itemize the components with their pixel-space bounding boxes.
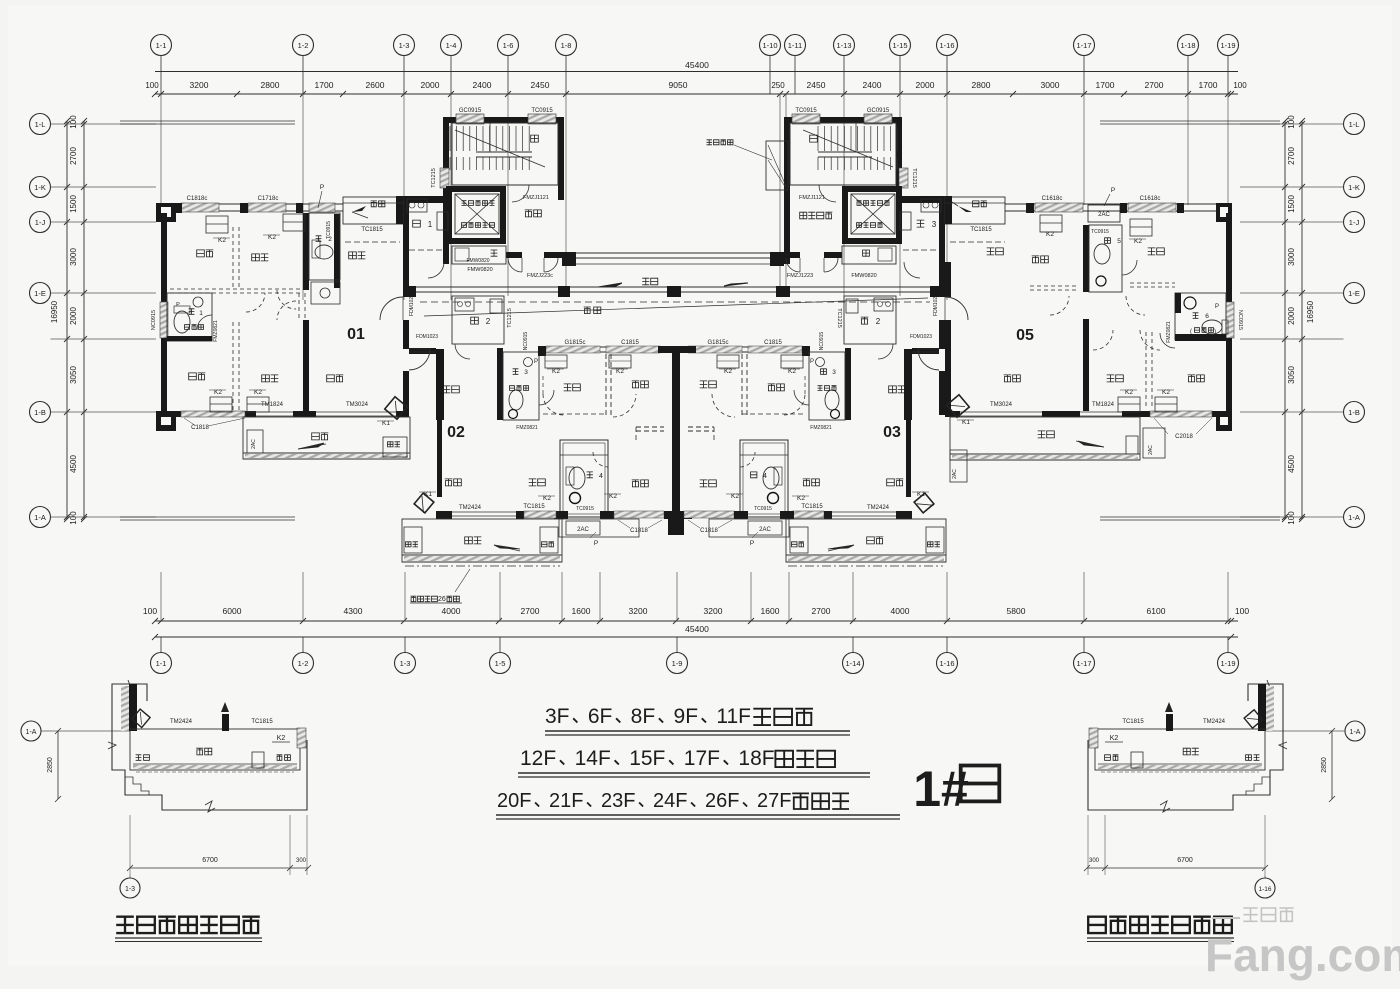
svg-text:FMZ0821: FMZ0821 <box>213 320 219 342</box>
svg-text:1500: 1500 <box>69 195 78 213</box>
svg-text:1-E: 1-E <box>1348 289 1360 298</box>
svg-text:3200: 3200 <box>704 606 723 616</box>
svg-text:6100: 6100 <box>1147 606 1166 616</box>
svg-text:TC1815: TC1815 <box>251 719 273 725</box>
svg-text:FDM1023: FDM1023 <box>416 334 438 340</box>
svg-text:24F: 24F <box>653 790 687 812</box>
svg-text:1-J: 1-J <box>35 218 46 227</box>
svg-text:100: 100 <box>1287 115 1296 129</box>
svg-text:P: P <box>320 184 324 191</box>
svg-text:5: 5 <box>1117 238 1121 245</box>
svg-text:26: 26 <box>438 596 446 603</box>
svg-text:TC1815: TC1815 <box>523 504 545 510</box>
svg-text:1-1: 1-1 <box>156 41 167 50</box>
svg-text:5800: 5800 <box>1007 606 1026 616</box>
svg-text:NC0915: NC0915 <box>819 332 825 351</box>
svg-text:1-1: 1-1 <box>156 659 167 668</box>
svg-text:P: P <box>594 540 598 547</box>
svg-text:1-8: 1-8 <box>561 41 572 50</box>
svg-text:2: 2 <box>486 317 491 326</box>
svg-text:2400: 2400 <box>473 80 492 90</box>
svg-text:TC0915: TC0915 <box>576 506 594 512</box>
svg-text:100: 100 <box>145 81 159 90</box>
svg-text:8F: 8F <box>631 705 656 728</box>
svg-text:3200: 3200 <box>190 80 209 90</box>
svg-text:6000: 6000 <box>223 606 242 616</box>
svg-text:1-L: 1-L <box>35 120 46 129</box>
svg-text:15F: 15F <box>629 747 665 770</box>
svg-text:4: 4 <box>763 473 767 480</box>
svg-text:2000: 2000 <box>1287 307 1296 325</box>
svg-text:FMZJ1121: FMZJ1121 <box>523 195 549 201</box>
svg-text:1-L: 1-L <box>1349 120 1360 129</box>
svg-text:9050: 9050 <box>669 80 688 90</box>
svg-text:TM2424: TM2424 <box>459 505 482 511</box>
svg-text:1-16: 1-16 <box>939 659 954 668</box>
svg-text:3F: 3F <box>545 705 570 728</box>
svg-text:FMZJ223c: FMZJ223c <box>527 273 553 279</box>
svg-text:17F: 17F <box>684 747 720 770</box>
svg-text:2850: 2850 <box>1321 757 1328 773</box>
svg-text:27F: 27F <box>757 790 791 812</box>
svg-text:TC0915: TC0915 <box>754 506 772 512</box>
svg-text:1-15: 1-15 <box>892 41 907 50</box>
svg-text:TM1824: TM1824 <box>1092 402 1115 408</box>
svg-text:Fang.com: Fang.com <box>1205 929 1400 981</box>
svg-text:TC1815: TC1815 <box>1122 719 1144 725</box>
svg-text:2AC: 2AC <box>952 469 958 479</box>
svg-text:2450: 2450 <box>807 80 826 90</box>
svg-text:05: 05 <box>1016 327 1034 344</box>
svg-text:TM3024: TM3024 <box>346 402 369 408</box>
svg-text:4500: 4500 <box>69 455 78 473</box>
svg-text:100: 100 <box>1233 81 1247 90</box>
svg-text:45400: 45400 <box>685 624 709 634</box>
svg-text:2700: 2700 <box>69 147 78 165</box>
svg-text:1-K: 1-K <box>34 183 46 192</box>
svg-text:21F: 21F <box>549 790 583 812</box>
svg-text:P: P <box>750 540 754 547</box>
svg-text:2700: 2700 <box>1287 147 1296 165</box>
svg-text:P: P <box>534 359 538 365</box>
svg-text:1500: 1500 <box>1287 195 1296 213</box>
svg-text:1600: 1600 <box>761 606 780 616</box>
svg-text:4: 4 <box>599 473 603 480</box>
svg-text:K2: K2 <box>1110 735 1119 742</box>
svg-text:1-17: 1-17 <box>1076 659 1091 668</box>
svg-text:): ) <box>1214 329 1216 335</box>
svg-text:9F: 9F <box>674 705 699 728</box>
svg-text:300: 300 <box>1089 858 1100 864</box>
svg-text:11F: 11F <box>716 705 751 728</box>
svg-text:(: ( <box>1190 329 1192 335</box>
svg-text:2400: 2400 <box>863 80 882 90</box>
svg-text:2AC: 2AC <box>1098 212 1110 218</box>
svg-text:2AC: 2AC <box>577 527 589 533</box>
svg-text:TC1215: TC1215 <box>911 168 917 188</box>
svg-text:FMW0820: FMW0820 <box>851 273 876 279</box>
svg-text:6: 6 <box>1205 313 1209 320</box>
svg-text:FDM1023: FDM1023 <box>933 294 939 316</box>
svg-text:P: P <box>1215 304 1219 310</box>
svg-text:26F: 26F <box>705 790 739 812</box>
svg-text:1-3: 1-3 <box>125 886 135 893</box>
svg-text:2800: 2800 <box>261 80 280 90</box>
svg-text:NC0915: NC0915 <box>1237 310 1243 330</box>
svg-text:P: P <box>810 359 814 365</box>
svg-text:100: 100 <box>69 511 78 525</box>
svg-text:C1815: C1815 <box>621 340 639 346</box>
svg-text:1-10: 1-10 <box>762 41 777 50</box>
svg-text:1-6: 1-6 <box>503 41 514 50</box>
svg-text:FMW0820: FMW0820 <box>466 258 489 264</box>
svg-text:C1618c: C1618c <box>1042 196 1063 202</box>
svg-text:1-E: 1-E <box>34 289 46 298</box>
svg-text:G1815c: G1815c <box>564 340 585 346</box>
svg-text:C1818: C1818 <box>191 425 209 431</box>
svg-text:TC0915: TC0915 <box>1091 229 1109 235</box>
svg-text:1-5: 1-5 <box>495 659 506 668</box>
svg-text:2: 2 <box>876 317 881 326</box>
svg-text:C1815: C1815 <box>764 340 782 346</box>
svg-text:100: 100 <box>143 606 157 616</box>
svg-text:TC1815: TC1815 <box>801 504 823 510</box>
svg-text:2AC: 2AC <box>759 527 771 533</box>
svg-text:1-16: 1-16 <box>1258 886 1271 893</box>
svg-text:3050: 3050 <box>69 366 78 384</box>
svg-text:3000: 3000 <box>1287 248 1296 266</box>
svg-text:GC0915: GC0915 <box>867 108 890 114</box>
svg-text:01: 01 <box>347 326 365 343</box>
svg-text:16950: 16950 <box>50 300 59 323</box>
svg-text:TM1824: TM1824 <box>261 402 284 408</box>
svg-text:1-J: 1-J <box>1349 218 1360 227</box>
svg-text:1-17: 1-17 <box>1076 41 1091 50</box>
svg-text:100: 100 <box>1287 511 1296 525</box>
svg-text:TM2424: TM2424 <box>170 719 193 725</box>
svg-text:TC1215: TC1215 <box>431 168 437 188</box>
svg-text:2AC: 2AC <box>1148 445 1154 455</box>
svg-text:45400: 45400 <box>685 60 709 70</box>
svg-text:3050: 3050 <box>1287 366 1296 384</box>
svg-text:1-9: 1-9 <box>672 659 683 668</box>
svg-text:G1815c: G1815c <box>707 340 728 346</box>
svg-text:P: P <box>176 302 180 308</box>
svg-text:1-2: 1-2 <box>298 41 309 50</box>
svg-text:C1618c: C1618c <box>1140 196 1161 202</box>
svg-text:TC0915: TC0915 <box>326 221 332 239</box>
svg-text:1-19: 1-19 <box>1220 659 1235 668</box>
svg-text:4300: 4300 <box>344 606 363 616</box>
svg-text:1700: 1700 <box>315 80 334 90</box>
svg-text:TM2424: TM2424 <box>867 505 890 511</box>
svg-text:1-A: 1-A <box>26 729 37 736</box>
svg-text:02: 02 <box>447 424 465 441</box>
svg-text:20F: 20F <box>497 790 531 812</box>
svg-text:1-K: 1-K <box>1348 183 1360 192</box>
svg-text:2850: 2850 <box>47 757 54 773</box>
svg-text:1: 1 <box>199 310 203 317</box>
svg-text:3: 3 <box>832 369 836 376</box>
svg-text:2000: 2000 <box>421 80 440 90</box>
svg-text:4000: 4000 <box>442 606 461 616</box>
svg-text:C1818c: C1818c <box>187 196 208 202</box>
svg-text:1-11: 1-11 <box>788 41 802 50</box>
svg-text:6F: 6F <box>588 705 613 728</box>
svg-text:1-A: 1-A <box>1350 729 1361 736</box>
svg-text:1700: 1700 <box>1096 80 1115 90</box>
svg-text:NC0915: NC0915 <box>151 310 157 330</box>
svg-text:1-3: 1-3 <box>400 659 411 668</box>
svg-text:TC0915: TC0915 <box>531 108 553 114</box>
svg-text:3000: 3000 <box>69 248 78 266</box>
svg-text:1-4: 1-4 <box>446 41 457 50</box>
svg-text:3: 3 <box>932 220 937 229</box>
svg-text:TM3024: TM3024 <box>990 402 1013 408</box>
svg-text:1-2: 1-2 <box>298 659 309 668</box>
svg-text:FMZ0821: FMZ0821 <box>1166 321 1172 343</box>
svg-text:C1718c: C1718c <box>258 196 279 202</box>
svg-text:2700: 2700 <box>521 606 540 616</box>
svg-text:100: 100 <box>1235 606 1249 616</box>
svg-text:3: 3 <box>524 369 528 376</box>
svg-text:1-19: 1-19 <box>1220 41 1235 50</box>
svg-text:1-3: 1-3 <box>399 41 410 50</box>
svg-text:NC0915: NC0915 <box>523 332 529 351</box>
svg-text:100: 100 <box>69 115 78 129</box>
svg-text:250: 250 <box>771 81 785 90</box>
svg-text:FMZ0821: FMZ0821 <box>810 425 832 431</box>
svg-text:6700: 6700 <box>202 857 218 864</box>
svg-text:1-B: 1-B <box>1348 408 1360 417</box>
svg-text:FDM1023: FDM1023 <box>409 294 415 316</box>
svg-text:2000: 2000 <box>69 307 78 325</box>
svg-text:1: 1 <box>428 220 433 229</box>
svg-text:1-18: 1-18 <box>1180 41 1195 50</box>
svg-text:FMW0820: FMW0820 <box>467 267 492 273</box>
svg-text:2600: 2600 <box>366 80 385 90</box>
svg-text:TC1215: TC1215 <box>836 308 842 328</box>
svg-text:2700: 2700 <box>812 606 831 616</box>
svg-text:1700: 1700 <box>1199 80 1218 90</box>
svg-text:P: P <box>1111 187 1115 194</box>
svg-text:23F: 23F <box>601 790 635 812</box>
svg-text:TM2424: TM2424 <box>1203 719 1226 725</box>
svg-text:3200: 3200 <box>629 606 648 616</box>
svg-text:18F: 18F <box>738 747 774 770</box>
svg-text:300: 300 <box>296 858 307 864</box>
svg-text:2AC: 2AC <box>251 439 257 449</box>
svg-text:4500: 4500 <box>1287 455 1296 473</box>
svg-text:3000: 3000 <box>1041 80 1060 90</box>
svg-text:TC1815: TC1815 <box>361 227 383 233</box>
svg-text:TC1815: TC1815 <box>970 227 992 233</box>
svg-text:FMZJ1121: FMZJ1121 <box>799 195 825 201</box>
svg-text:16950: 16950 <box>1306 300 1315 323</box>
svg-text:1-B: 1-B <box>34 408 46 417</box>
svg-text:14F: 14F <box>575 747 611 770</box>
svg-text:GC0915: GC0915 <box>459 108 482 114</box>
svg-text:03: 03 <box>883 424 901 441</box>
svg-text:FMZ0821: FMZ0821 <box>516 425 538 431</box>
svg-text:1-A: 1-A <box>1348 513 1360 522</box>
svg-text:2700: 2700 <box>1145 80 1164 90</box>
svg-text:K2: K2 <box>277 735 286 742</box>
svg-text:1600: 1600 <box>572 606 591 616</box>
svg-text:TC0915: TC0915 <box>795 108 817 114</box>
svg-text:1-16: 1-16 <box>939 41 954 50</box>
svg-text:12F: 12F <box>520 747 556 770</box>
svg-text:4000: 4000 <box>891 606 910 616</box>
svg-text:2800: 2800 <box>972 80 991 90</box>
svg-text:FDM1023: FDM1023 <box>910 334 932 340</box>
svg-text:1-A: 1-A <box>34 513 46 522</box>
svg-text:6700: 6700 <box>1177 857 1193 864</box>
svg-text:1-13: 1-13 <box>836 41 851 50</box>
svg-text:FMZJ1223: FMZJ1223 <box>787 273 813 279</box>
svg-text:TC1215: TC1215 <box>507 308 513 328</box>
svg-text:2000: 2000 <box>916 80 935 90</box>
svg-text:C2018: C2018 <box>1175 434 1193 440</box>
svg-text:2450: 2450 <box>531 80 550 90</box>
svg-text:1-14: 1-14 <box>845 659 860 668</box>
